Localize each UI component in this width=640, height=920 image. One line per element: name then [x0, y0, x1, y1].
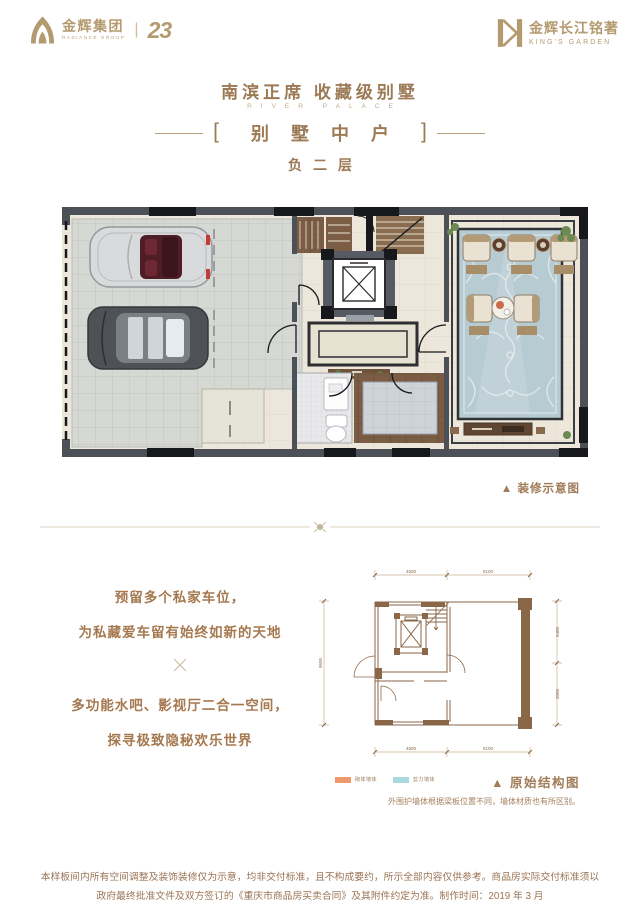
bracket-left: [	[203, 120, 229, 144]
wall-legend: 砌体墙体 剪力墙体	[335, 776, 435, 783]
brand-left-name: 金辉集团	[62, 19, 125, 33]
disclaimer-line: 本样板间内所有空间调整及装饰装修仅为示意，均非交付标准，且不构成要约，所示全部内…	[30, 869, 610, 888]
dim-label: 4500	[406, 746, 417, 751]
bracket-right: ]	[411, 120, 437, 144]
legend-label: 剪力墙体	[413, 776, 435, 783]
brand-left-subtitle: RADIANCE GROUP	[62, 36, 125, 41]
unit-title: 别墅中户	[229, 120, 411, 146]
disclaimer-line: 政府最终批准文件及双方签订的《重庆市商品房买卖合同》及其附件约定为准。制作时间：…	[30, 888, 610, 907]
structural-plan-caption: ▲ 原始结构图	[491, 772, 580, 791]
legend-swatch-blue	[393, 777, 409, 783]
brand-separator: |	[134, 21, 138, 39]
dim-label: 9600	[318, 657, 323, 668]
legend-swatch-orange	[335, 777, 351, 783]
floor-label: 负二层	[0, 155, 640, 175]
description-line: 探寻极致隐秘欢乐世界	[40, 729, 320, 749]
brand-right-name: 金辉长江铭著	[529, 21, 619, 35]
cross-ornament-icon	[40, 658, 320, 675]
right-rule	[437, 133, 485, 134]
brand-right: 金辉长江铭著 KING'S GARDEN	[497, 18, 619, 48]
floorplan-graphic	[62, 207, 588, 457]
wall-material-note: 外围护墙体根据梁板位置不同，墙体材质也有所区别。	[388, 796, 580, 807]
structural-diagram-graphic: 4500 5100 4500 5100 9600 5400 3000	[318, 560, 570, 772]
radiance-group-logo-icon	[30, 15, 55, 45]
section-divider	[40, 519, 600, 529]
legend-item-shearwall: 剪力墙体	[393, 776, 435, 783]
car-suv-icon	[88, 307, 208, 369]
legend-label: 砌体墙体	[355, 776, 377, 783]
anniversary-23-mark: 23	[148, 17, 172, 44]
car-sports-icon	[90, 227, 212, 287]
brand-left: 金辉集团 RADIANCE GROUP | 23	[30, 15, 171, 45]
description-line: 为私藏爱车留有始终如新的天地	[40, 621, 320, 641]
description-line: 多功能水吧、影视厅二合一空间，	[40, 694, 320, 714]
page-title: 南滨正席 收藏级别墅	[0, 78, 640, 103]
dim-label: 5100	[483, 746, 494, 751]
decorated-floorplan	[62, 207, 588, 457]
brochure-page: 金辉集团 RADIANCE GROUP | 23 金辉长江铭著 KING'S G…	[0, 0, 640, 920]
left-rule	[155, 133, 203, 134]
page-subtitle-en: RIVER PALACE	[0, 103, 640, 110]
dim-label: 5100	[483, 569, 494, 574]
dim-label: 4500	[406, 569, 417, 574]
kings-garden-logo-icon	[497, 18, 523, 48]
description-line: 预留多个私家车位，	[40, 586, 320, 606]
decorated-plan-caption: ▲ 装修示意图	[501, 480, 580, 496]
dim-label: 5400	[555, 626, 560, 637]
legend-item-masonry: 砌体墙体	[335, 776, 377, 783]
brand-right-subtitle: KING'S GARDEN	[529, 39, 619, 46]
dim-label: 3000	[555, 688, 560, 699]
disclaimer: 本样板间内所有空间调整及装饰装修仅为示意，均非交付标准，且不构成要约，所示全部内…	[30, 869, 610, 906]
unit-title-row: [ 别墅中户 ]	[0, 120, 640, 146]
structural-diagram: 4500 5100 4500 5100 9600 5400 3000	[318, 560, 570, 772]
